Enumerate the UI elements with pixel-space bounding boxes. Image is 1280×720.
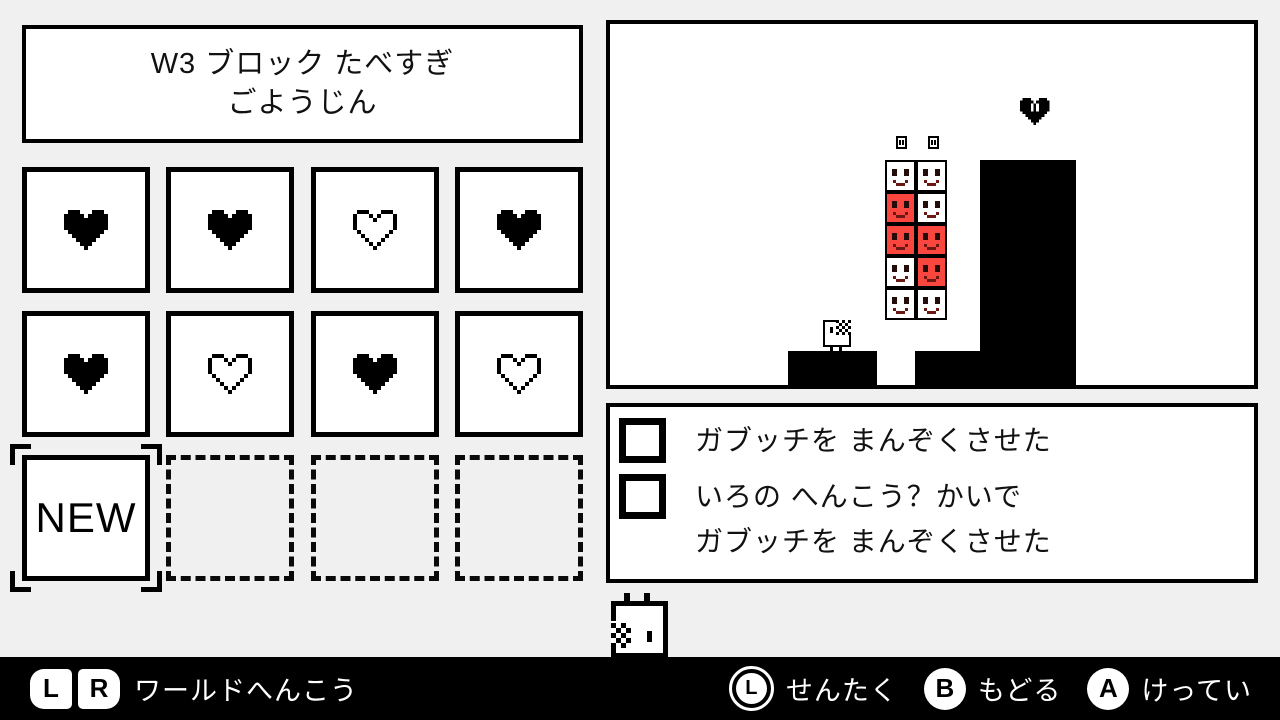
smiley-block-red — [885, 192, 916, 224]
world-title-line1: W3 ブロック たべすぎ — [151, 49, 455, 81]
footer-bar: LR ワールドへんこう LせんたくBもどるAけってい — [0, 657, 1280, 720]
a-button-icon: A — [1087, 668, 1129, 710]
smiley-block-red — [916, 224, 947, 256]
footer-left-hints: LR ワールドへんこう — [30, 657, 358, 720]
level-tile-3[interactable] — [311, 167, 439, 293]
challenge-text: ガブッチを まんぞくさせた — [695, 418, 1052, 463]
new-tile-label: NEW — [36, 494, 137, 542]
level-tile-6[interactable] — [166, 311, 294, 437]
heart-filled-icon — [497, 210, 541, 250]
hint-label: けってい — [1141, 669, 1252, 708]
hint-label: せんたく — [786, 669, 898, 708]
level-tile-10 — [166, 455, 294, 581]
level-tile-2[interactable] — [166, 167, 294, 293]
l-button-icon: L — [30, 669, 72, 709]
level-tile-12 — [455, 455, 583, 581]
smiley-block-white — [885, 256, 916, 288]
level-tile-7[interactable] — [311, 311, 439, 437]
heart-sprite — [1020, 98, 1050, 125]
smiley-block-white — [916, 160, 947, 192]
smiley-block-red — [916, 256, 947, 288]
challenge-item-1: ガブッチを まんぞくさせた — [619, 418, 1246, 463]
level-tile-11 — [311, 455, 439, 581]
heart-outline-icon — [353, 210, 397, 250]
heart-filled-icon — [353, 354, 397, 394]
footer-right-hints: LせんたくBもどるAけってい — [729, 657, 1252, 720]
world-title-box: W3 ブロック たべすぎ ごようじん — [22, 25, 583, 143]
challenge-panel: ガブッチを まんぞくさせたいろの へんこう？かいでガブッチを まんぞくさせた — [606, 403, 1258, 583]
challenge-checkbox — [619, 474, 666, 519]
hint-label: もどる — [978, 669, 1061, 708]
footer-left-label: ワールドへんこう — [134, 669, 358, 708]
smiley-block-red — [885, 224, 916, 256]
level-tile-5[interactable] — [22, 311, 150, 437]
level-tile-8[interactable] — [455, 311, 583, 437]
world-title-line2: ごようじん — [227, 88, 377, 120]
preview-panel — [606, 20, 1258, 389]
r-button-icon: R — [78, 669, 120, 709]
smiley-block-white — [916, 288, 947, 320]
smiley-block-white — [916, 192, 947, 224]
level-tile-4[interactable] — [455, 167, 583, 293]
challenge-text: いろの へんこう？かいで — [695, 474, 1052, 519]
challenge-item-2: いろの へんこう？かいでガブッチを まんぞくさせた — [619, 474, 1246, 564]
heart-outline-icon — [208, 354, 252, 394]
platform-left — [788, 351, 877, 385]
mini-block-sprite — [896, 136, 907, 149]
platform-middle — [915, 351, 980, 385]
left-stick-icon: L — [729, 666, 774, 711]
heart-filled-icon — [208, 210, 252, 250]
smiley-block-white — [885, 288, 916, 320]
b-button-icon: B — [924, 668, 966, 710]
level-tile-9[interactable]: NEW — [22, 455, 150, 581]
gabucchi-footer-sprite — [611, 593, 668, 658]
level-tile-1[interactable] — [22, 167, 150, 293]
heart-filled-icon — [64, 210, 108, 250]
block-stack — [885, 160, 947, 320]
gabucchi-sprite — [823, 320, 851, 351]
smiley-block-white — [885, 160, 916, 192]
challenge-text: ガブッチを まんぞくさせた — [695, 519, 1052, 564]
challenge-checkbox — [619, 418, 666, 463]
platform-column — [980, 160, 1076, 385]
mini-block-sprite — [928, 136, 939, 149]
heart-outline-icon — [497, 354, 541, 394]
heart-filled-icon — [64, 354, 108, 394]
